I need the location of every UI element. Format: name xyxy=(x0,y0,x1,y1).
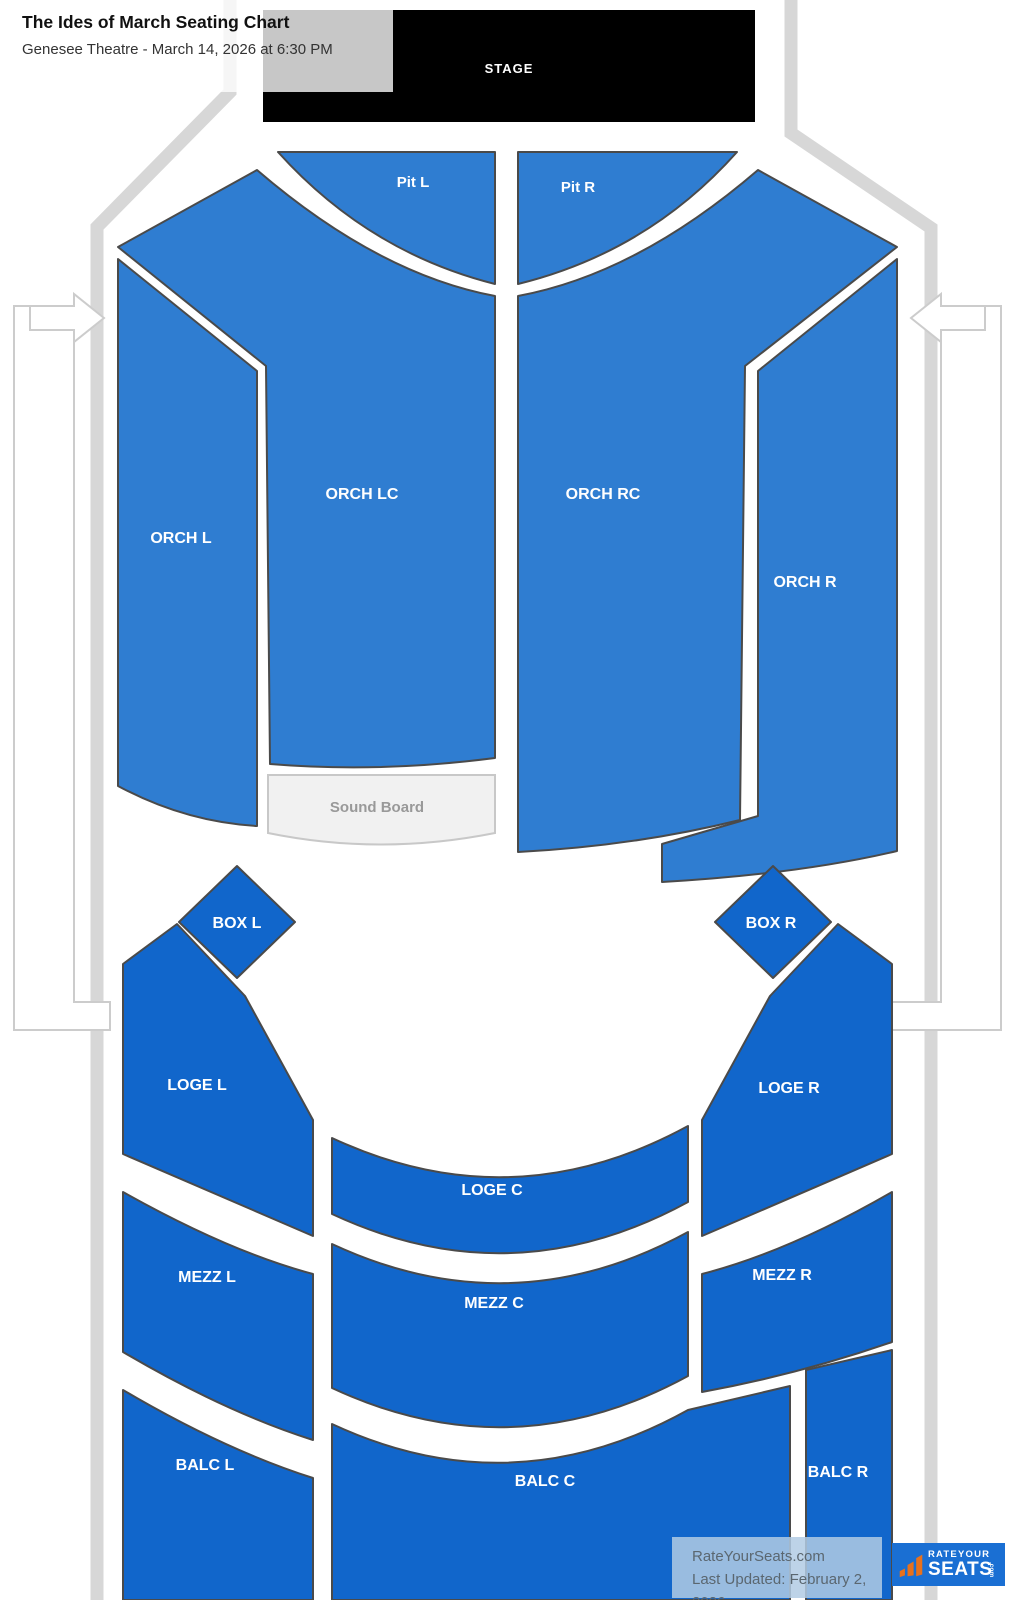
attribution-box: RateYourSeats.com Last Updated: February… xyxy=(672,1537,882,1598)
corridor-right xyxy=(890,306,1001,1030)
label-box-l: BOX L xyxy=(213,915,262,932)
stage-label: STAGE xyxy=(485,61,534,76)
attribution-updated: Last Updated: February 2, 2026 xyxy=(692,1568,882,1600)
label-loge-l: LOGE L xyxy=(167,1077,227,1094)
page-title: The Ides of March Seating Chart xyxy=(22,12,393,33)
label-mezz-l: MEZZ L xyxy=(178,1269,236,1286)
label-sound-board: Sound Board xyxy=(330,799,424,816)
rateyourseats-logo[interactable]: RATEYOUR SEATS .com xyxy=(892,1543,1005,1586)
logo-com: .com xyxy=(988,1562,995,1577)
logo-text: RATEYOUR SEATS .com xyxy=(928,1550,1010,1579)
label-orch-lc: ORCH LC xyxy=(326,486,399,503)
label-orch-l: ORCH L xyxy=(150,530,212,547)
label-balc-l: BALC L xyxy=(176,1457,235,1474)
logo-seats: SEATS xyxy=(928,1560,992,1579)
label-pit-r: Pit R xyxy=(561,179,595,196)
label-pit-l: Pit L xyxy=(397,174,430,191)
page-subtitle: Genesee Theatre - March 14, 2026 at 6:30… xyxy=(22,41,393,58)
seating-chart-page: STAGE Pit L Pit R ORCH L ORCH LC ORCH RC… xyxy=(0,0,1015,1600)
label-orch-r: ORCH R xyxy=(773,574,837,591)
label-orch-rc: ORCH RC xyxy=(566,486,641,503)
label-balc-c: BALC C xyxy=(515,1473,576,1490)
section-mezz-c[interactable] xyxy=(332,1232,688,1427)
label-mezz-r: MEZZ R xyxy=(752,1267,812,1284)
label-loge-r: LOGE R xyxy=(758,1080,820,1097)
label-loge-c: LOGE C xyxy=(461,1182,523,1199)
seating-map: STAGE Pit L Pit R ORCH L ORCH LC ORCH RC… xyxy=(0,0,1015,1600)
title-card: The Ides of March Seating Chart Genesee … xyxy=(0,0,393,92)
section-mezz-l[interactable] xyxy=(123,1192,313,1440)
label-balc-r: BALC R xyxy=(808,1464,869,1481)
label-mezz-c: MEZZ C xyxy=(464,1295,524,1312)
attribution-site: RateYourSeats.com xyxy=(692,1545,882,1568)
label-box-r: BOX R xyxy=(746,915,797,932)
logo-bars-icon xyxy=(898,1551,924,1579)
